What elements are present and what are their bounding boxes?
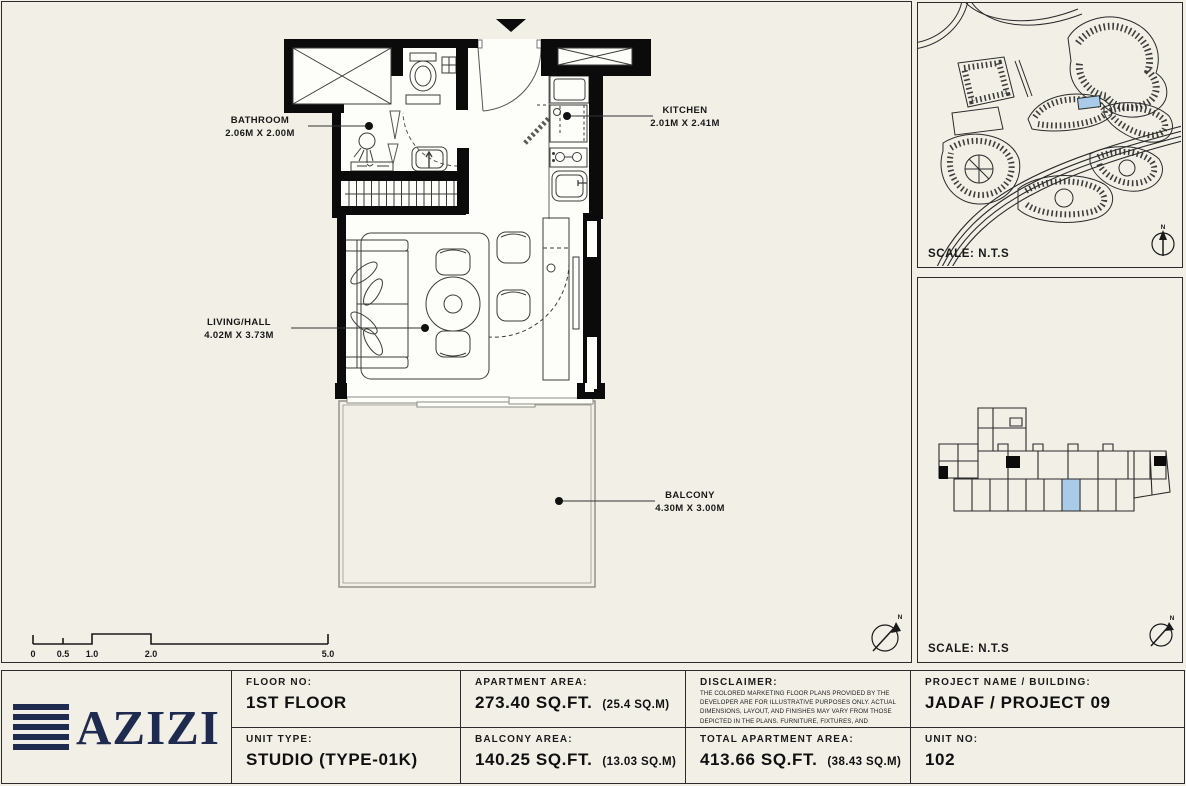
north-compass-icon: N [1150, 615, 1175, 646]
room-dims-kitchen: 2.01M X 2.41M [650, 118, 720, 129]
unit-no-label: UNIT NO: [925, 734, 1170, 745]
highlighted-building [1077, 96, 1100, 110]
project-name-label: PROJECT NAME / BUILDING: [925, 677, 1170, 688]
floor-no-cell: FLOOR NO: 1ST FLOOR [231, 671, 460, 727]
floor-no-label: FLOOR NO: [246, 677, 446, 688]
highlighted-unit [1062, 479, 1080, 511]
project-name-value: JADAF / PROJECT 09 [925, 693, 1170, 713]
disclaimer-text: THE COLORED MARKETING FLOOR PLANS PROVID… [700, 689, 896, 727]
floor-no-value: 1ST FLOOR [246, 693, 446, 713]
unit-no-value: 102 [925, 750, 1170, 770]
room-label-balcony: BALCONY [665, 490, 715, 501]
balcony-area-metric: (13.03 SQ.M) [602, 756, 676, 768]
key-plan-panel: SCALE: N.T.S N [917, 277, 1183, 663]
logo-cell: AZIZI [2, 671, 231, 783]
total-area-value: 413.66 SQ.FT. [700, 750, 817, 769]
room-dims-bathroom: 2.06M X 2.00M [225, 128, 295, 139]
unit-no-cell: UNIT NO: 102 [910, 727, 1184, 783]
svg-text:N: N [1170, 615, 1175, 622]
site-map-panel: SCALE: N.T.S N [917, 2, 1183, 268]
balcony-area-cell: BALCONY AREA: 140.25 SQ.FT.(13.03 SQ.M) [460, 727, 685, 783]
disclaimer-label: DISCLAIMER: [700, 677, 896, 688]
floor-plan-sheet: { "colors": { "background": "#f2efe7", "… [0, 0, 1186, 786]
entry-arrow-icon [496, 19, 526, 32]
scale-tick-05: 0.5 [57, 649, 70, 659]
total-area-cell: TOTAL APARTMENT AREA: 413.66 SQ.FT.(38.4… [685, 727, 910, 783]
unit-type-label: UNIT TYPE: [246, 734, 446, 745]
apartment-area-metric: (25.4 SQ.M) [602, 699, 669, 711]
project-name-cell: PROJECT NAME / BUILDING: JADAF / PROJECT… [910, 671, 1184, 727]
apartment-area-label: APARTMENT AREA: [475, 677, 671, 688]
unit-type-value: STUDIO (TYPE-01K) [246, 750, 446, 770]
logo-bars-icon [13, 704, 69, 751]
floor-plan-area: BATHROOM 2.06M X 2.00M KITCHEN 2.01M X 2… [1, 1, 912, 663]
balcony-outline [339, 397, 595, 587]
site-map: SCALE: N.T.S N [918, 3, 1181, 266]
room-label-bathroom: BATHROOM [231, 115, 289, 126]
north-compass-icon: N [872, 614, 903, 651]
unit-type-cell: UNIT TYPE: STUDIO (TYPE-01K) [231, 727, 460, 783]
north-compass-icon: N [1152, 224, 1174, 256]
total-area-metric: (38.43 SQ.M) [827, 756, 901, 768]
scale-label: SCALE: N.T.S [928, 248, 1009, 260]
stair-cores [939, 456, 1166, 479]
title-block: AZIZI FLOOR NO: 1ST FLOOR APARTMENT AREA… [1, 670, 1185, 784]
azizi-logo: AZIZI [13, 703, 220, 752]
room-dims-living: 4.02M X 3.73M [204, 330, 274, 341]
svg-text:N: N [1161, 224, 1166, 231]
scale-tick-1: 1.0 [86, 649, 99, 659]
total-area-label: TOTAL APARTMENT AREA: [700, 734, 896, 745]
room-label-kitchen: KITCHEN [662, 105, 707, 116]
scale-tick-2: 2.0 [145, 649, 158, 659]
room-label-living: LIVING/HALL [207, 317, 271, 328]
balcony-area-value: 140.25 SQ.FT. [475, 750, 592, 769]
svg-text:N: N [898, 614, 903, 621]
building-key-plan: SCALE: N.T.S N [918, 278, 1181, 661]
room-dims-balcony: 4.30M X 3.00M [655, 503, 725, 514]
floor-plan-drawing: BATHROOM 2.06M X 2.00M KITCHEN 2.01M X 2… [2, 2, 910, 661]
scale-label: SCALE: N.T.S [928, 643, 1009, 655]
balcony-area-label: BALCONY AREA: [475, 734, 671, 745]
apartment-area-cell: APARTMENT AREA: 273.40 SQ.FT.(25.4 SQ.M) [460, 671, 685, 727]
logo-wordmark: AZIZI [76, 703, 220, 752]
scale-tick-5: 5.0 [322, 649, 335, 659]
disclaimer-cell: DISCLAIMER: THE COLORED MARKETING FLOOR … [685, 671, 910, 727]
scale-bar: 0 0.5 1.0 2.0 5.0 [30, 634, 334, 659]
scale-tick-0: 0 [30, 649, 35, 659]
apartment-area-value: 273.40 SQ.FT. [475, 693, 592, 712]
